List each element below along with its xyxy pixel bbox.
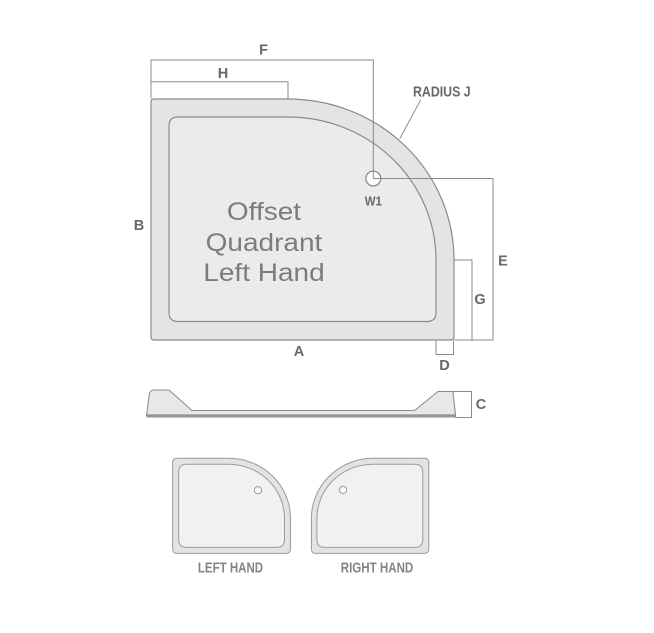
svg-text:W1: W1 — [365, 194, 382, 209]
svg-text:Left Hand: Left Hand — [203, 258, 324, 286]
svg-text:RIGHT HAND: RIGHT HAND — [341, 559, 414, 576]
svg-text:Offset: Offset — [227, 197, 302, 225]
svg-text:A: A — [294, 344, 305, 360]
svg-text:RADIUS J: RADIUS J — [413, 84, 471, 100]
svg-text:C: C — [476, 397, 487, 413]
svg-text:Quadrant: Quadrant — [206, 228, 323, 256]
svg-text:G: G — [474, 292, 485, 308]
svg-text:LEFT HAND: LEFT HAND — [198, 559, 263, 576]
svg-text:B: B — [134, 218, 144, 234]
svg-text:F: F — [259, 43, 268, 59]
svg-text:D: D — [439, 358, 449, 374]
svg-text:E: E — [498, 254, 508, 270]
svg-text:H: H — [218, 66, 228, 82]
